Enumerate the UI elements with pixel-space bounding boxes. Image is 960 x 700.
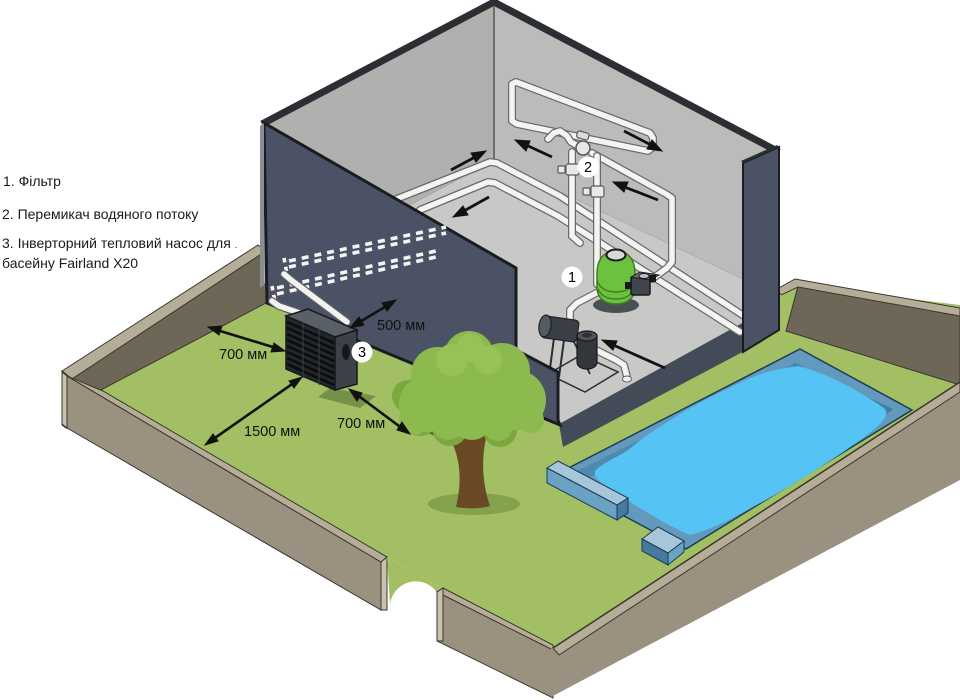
svg-text:3. Інверторний тепловий насос: 3. Інверторний тепловий насос для . bbox=[2, 235, 237, 251]
svg-text:1. Фільтр: 1. Фільтр bbox=[3, 173, 61, 189]
svg-text:2. Перемикач водяного потоку: 2. Перемикач водяного потоку bbox=[2, 206, 198, 222]
svg-text:700 мм: 700 мм bbox=[337, 416, 385, 432]
svg-text:700 мм: 700 мм bbox=[219, 347, 267, 363]
svg-text:500 мм: 500 мм bbox=[377, 318, 425, 334]
svg-text:1: 1 bbox=[568, 270, 576, 286]
svg-text:1500 мм: 1500 мм bbox=[244, 424, 300, 440]
svg-text:басейну Fairland X20: басейну Fairland X20 bbox=[2, 255, 138, 271]
svg-text:2: 2 bbox=[584, 160, 592, 176]
svg-text:3: 3 bbox=[358, 345, 366, 361]
